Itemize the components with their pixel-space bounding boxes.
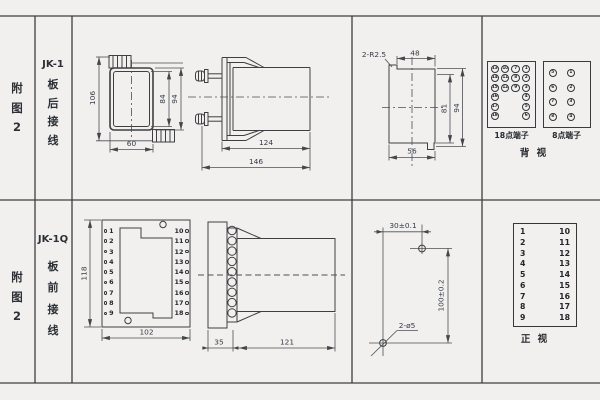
terminal-number: 18 xyxy=(171,309,185,317)
terminal-row: 18 xyxy=(171,308,189,318)
jk1-panel-cutout: 2-R2.5 48 81 94 56 xyxy=(362,49,466,167)
mounting-screw-bottom xyxy=(196,113,223,126)
model-label-jk1q: JK-1Q xyxy=(35,234,71,245)
terminal-number: 10 xyxy=(171,227,185,235)
terminal-circle: 12 xyxy=(501,84,509,92)
terminal-circle: 5 xyxy=(522,103,530,111)
terminal-circle: 6 xyxy=(522,112,530,120)
front-terminals-left: 1 2 3 4 5 6 7 8 9 xyxy=(104,226,120,319)
cell: 14 xyxy=(559,271,570,279)
wiring-char: 线 xyxy=(48,320,59,341)
note-2-r2p5: 2-R2.5 xyxy=(362,50,387,59)
terminal-row: 2 xyxy=(104,236,120,246)
terminal-table: 110 211 312 413 514 615 716 817 918 xyxy=(513,223,577,327)
note-2-o5: 2-ø5 xyxy=(399,321,416,330)
terminal-number: 17 xyxy=(171,299,185,307)
table-row: 817 xyxy=(520,303,570,311)
terminal-dot xyxy=(185,312,189,316)
cell: 13 xyxy=(559,260,570,268)
terminal-row: 4 xyxy=(104,257,120,267)
fig-char: 附 xyxy=(11,79,23,99)
terminal-dot xyxy=(185,239,189,243)
front-view-label: 正 视 xyxy=(505,331,565,345)
jk1q-drilling-plan: 30±0.1 100±0.2 2-ø5 xyxy=(369,221,452,356)
terminal-number: 12 xyxy=(171,248,185,256)
terminal-circle: 8 xyxy=(511,74,519,82)
terminal-grid-18: 13 10 7 1 14 11 8 2 15 12 9 3 16 4 17 5 … xyxy=(487,61,536,128)
table-row: 514 xyxy=(520,271,570,279)
fig-char: 附 xyxy=(11,268,23,288)
terminal-row: 17 xyxy=(171,298,189,308)
cell: 1 xyxy=(520,228,525,236)
rear-view-label: 背 视 xyxy=(502,145,566,159)
terminal-circle: 1 xyxy=(567,69,575,77)
jk1-side-view: 124 146 xyxy=(188,58,332,171)
terminal-circle: 17 xyxy=(491,103,499,111)
terminal-circle: 4 xyxy=(567,113,575,121)
terminal-row: 5 xyxy=(104,267,120,277)
cell: 12 xyxy=(559,250,570,258)
table-row: 615 xyxy=(520,282,570,290)
wiring-char: 后 xyxy=(48,95,59,114)
terminal-row: 9 xyxy=(104,308,120,318)
model-label-jk1: JK-1 xyxy=(36,59,70,70)
terminal-circle: 11 xyxy=(501,74,509,82)
terminal-row: 1 xyxy=(104,226,120,236)
terminal-number: 16 xyxy=(171,289,185,297)
wiring-char: 线 xyxy=(48,132,59,151)
fig-char: 2 xyxy=(13,307,21,327)
terminal-row: 13 xyxy=(171,257,189,267)
terminal-number: 13 xyxy=(171,258,185,266)
terminal-circle: 15 xyxy=(491,84,499,92)
table-row: 312 xyxy=(520,250,570,258)
cell: 11 xyxy=(559,239,570,247)
dim-35: 35 xyxy=(214,338,224,347)
terminal-circle: 1 xyxy=(522,65,530,73)
cell: 16 xyxy=(559,293,570,301)
dim-60: 60 xyxy=(127,139,137,148)
terminal-circle: 6 xyxy=(549,84,557,92)
table-row: 211 xyxy=(520,239,570,247)
terminal-circle: 4 xyxy=(522,93,530,101)
wiring-char: 接 xyxy=(48,113,59,132)
terminal-number: 11 xyxy=(171,237,185,245)
terminal-row: 12 xyxy=(171,246,189,256)
terminal-circle: 2 xyxy=(522,74,530,82)
terminal-circle: 13 xyxy=(491,65,499,73)
dim-30: 30±0.1 xyxy=(389,221,417,230)
table-row: 716 xyxy=(520,293,570,301)
wiring-label-row2: 板 前 接 线 xyxy=(36,256,70,342)
terminal-row: 14 xyxy=(171,267,189,277)
terminal-circle: 8 xyxy=(549,113,557,121)
terminal-dot xyxy=(185,250,189,254)
dim-81: 81 xyxy=(440,104,449,114)
dim-56: 56 xyxy=(407,147,417,156)
wiring-char: 板 xyxy=(48,256,59,277)
terminal-circle: 10 xyxy=(501,65,509,73)
wiring-char: 接 xyxy=(48,299,59,320)
terminal-circle: 3 xyxy=(567,98,575,106)
dim-146: 146 xyxy=(249,157,263,166)
terminal-row: 11 xyxy=(171,236,189,246)
terminal-number: 2 xyxy=(107,237,115,245)
terminal-circle: 14 xyxy=(491,74,499,82)
terminal-circle: 18 xyxy=(491,112,499,120)
terminal-circle: 2 xyxy=(567,84,575,92)
fig-char: 图 xyxy=(11,288,23,308)
fig-label-row1: 附 图 2 xyxy=(6,79,28,138)
dim-94: 94 xyxy=(170,94,179,104)
terminal-number: 7 xyxy=(107,289,115,297)
fig-char: 图 xyxy=(11,99,23,119)
cell: 5 xyxy=(520,271,525,279)
terminal-number: 14 xyxy=(171,268,185,276)
cell: 18 xyxy=(559,314,570,322)
wiring-label-row1: 板 后 接 线 xyxy=(36,76,70,150)
terminal-dot xyxy=(185,229,189,233)
cell: 8 xyxy=(520,303,525,311)
terminal-dot xyxy=(185,291,189,295)
jk1q-side-view: 35 121 xyxy=(198,222,345,352)
terminal-dot xyxy=(185,260,189,264)
terminal-dot xyxy=(185,270,189,274)
cell: 15 xyxy=(559,282,570,290)
terminal-row: 10 xyxy=(171,226,189,236)
wiring-char: 前 xyxy=(48,277,59,298)
cell: 3 xyxy=(520,250,525,258)
terminal-number: 3 xyxy=(107,248,115,256)
table-row: 110 xyxy=(520,228,570,236)
dim-118: 118 xyxy=(80,266,89,280)
drawing-sheet: { "colors": {"background":"#f1f0ee","lin… xyxy=(0,0,600,400)
front-terminals-right: 10 11 12 13 14 15 16 17 18 xyxy=(171,226,189,319)
terminal-number: 15 xyxy=(171,278,185,286)
terminal-row: 3 xyxy=(104,246,120,256)
cell: 2 xyxy=(520,239,525,247)
cell: 6 xyxy=(520,282,525,290)
fig-char: 2 xyxy=(13,118,21,138)
terminal-row: 16 xyxy=(171,288,189,298)
terminal-circle: 9 xyxy=(511,84,519,92)
terminal-number: 8 xyxy=(107,299,115,307)
terminal-row: 7 xyxy=(104,288,120,298)
cell: 7 xyxy=(520,293,525,301)
mounting-screw-top xyxy=(196,70,223,83)
jk1-front-view: 106 84 94 60 xyxy=(88,56,184,153)
dim-124: 124 xyxy=(259,138,273,147)
table-row: 413 xyxy=(520,260,570,268)
terminal-number: 6 xyxy=(107,278,115,286)
terminal-circle: 3 xyxy=(522,84,530,92)
dim-48: 48 xyxy=(410,49,420,58)
terminal-row: 15 xyxy=(171,277,189,287)
terminal-number: 1 xyxy=(107,227,115,235)
fig-label-row2: 附 图 2 xyxy=(6,268,28,327)
dim-106: 106 xyxy=(88,91,97,105)
cell: 4 xyxy=(520,260,525,268)
terminal-row: 6 xyxy=(104,277,120,287)
wiring-char: 板 xyxy=(48,76,59,95)
dim-84: 84 xyxy=(158,94,167,104)
dim-100: 100±0.2 xyxy=(437,279,446,311)
dim-94-cutout: 94 xyxy=(452,103,461,113)
cell: 17 xyxy=(559,303,570,311)
cell: 9 xyxy=(520,314,525,322)
dim-121: 121 xyxy=(280,338,294,347)
terminal-circle: 7 xyxy=(511,65,519,73)
terminal-dot xyxy=(185,301,189,305)
terminal-circle: 16 xyxy=(491,93,499,101)
table-row: 918 xyxy=(520,314,570,322)
terminal-dot xyxy=(185,281,189,285)
terminal-grid-18-label: 18点端子 xyxy=(483,130,540,141)
terminal-grid-8-label: 8点端子 xyxy=(540,130,593,141)
terminal-row: 8 xyxy=(104,298,120,308)
terminal-circle: 7 xyxy=(549,98,557,106)
terminal-grid-8: 5 1 6 2 7 3 8 4 xyxy=(543,61,591,128)
terminal-number: 4 xyxy=(107,258,115,266)
terminal-number: 9 xyxy=(107,309,115,317)
dim-102: 102 xyxy=(139,328,153,337)
terminal-number: 5 xyxy=(107,268,115,276)
terminal-circle: 5 xyxy=(549,69,557,77)
cell: 10 xyxy=(559,228,570,236)
